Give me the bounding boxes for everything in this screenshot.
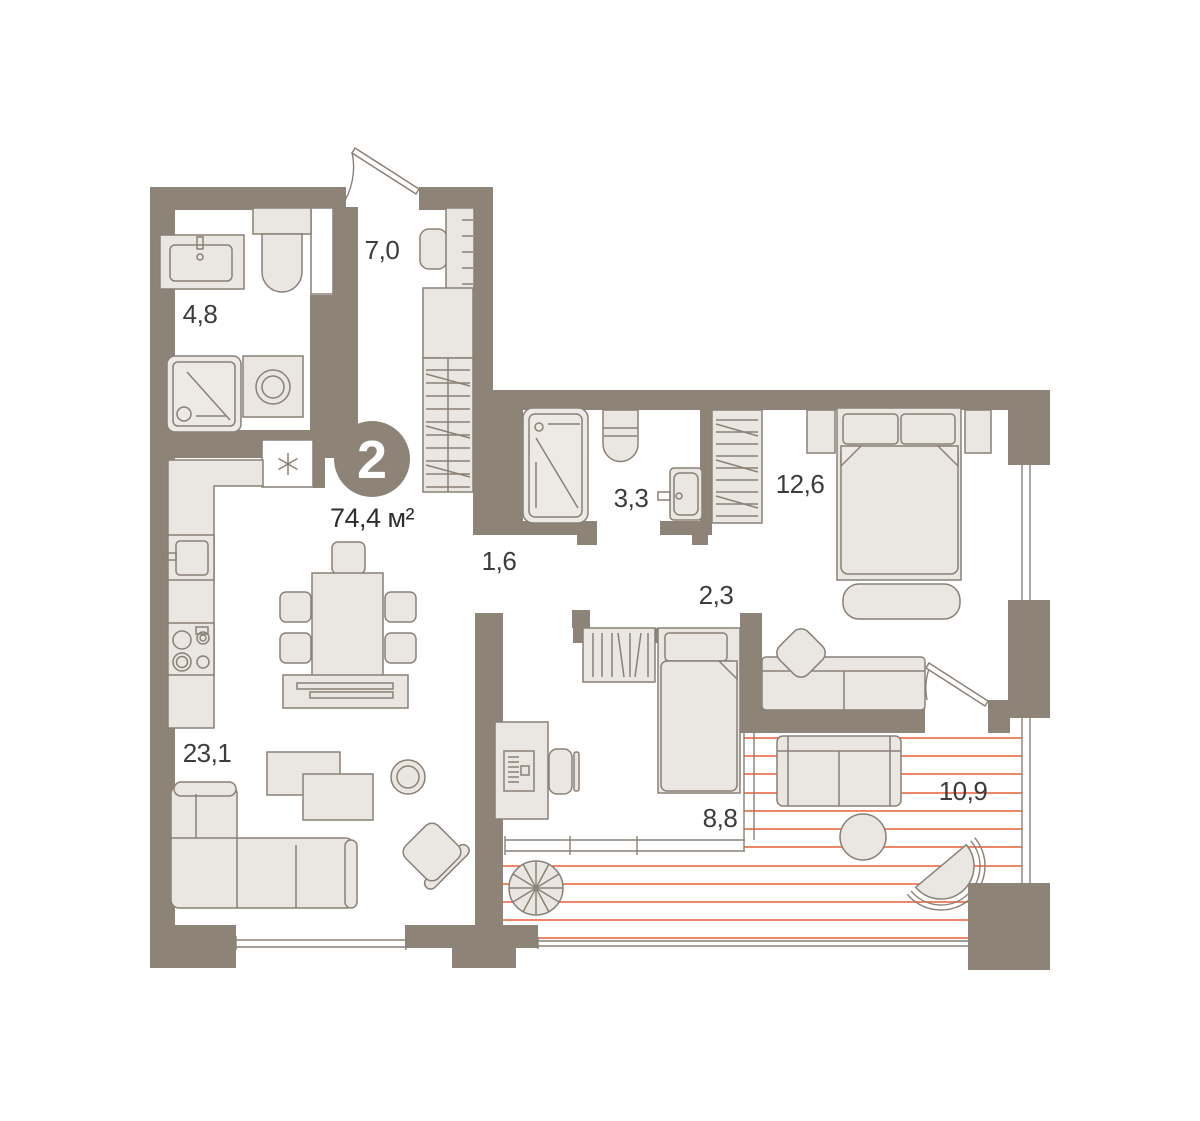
toilet-icon — [253, 208, 311, 292]
shower-tray-icon — [167, 356, 241, 432]
rooms-count-badge: 2 74,4 м² — [330, 421, 415, 533]
wall-segment — [452, 948, 516, 968]
room-area-label-entrance-hall: 7,0 — [365, 235, 400, 265]
cabinet-icon — [423, 288, 473, 358]
wall-segment — [1008, 600, 1050, 718]
wall-segment — [988, 700, 1010, 733]
wardrobe-icon — [423, 358, 473, 492]
kitchen-furniture — [162, 460, 472, 908]
living-room-window — [236, 936, 406, 950]
room-area-label-kitchen-living: 23,1 — [183, 738, 232, 768]
armchair-icon — [395, 815, 471, 891]
room-area-label-corridor: 2,3 — [699, 580, 734, 610]
bedroom-window — [1022, 465, 1030, 600]
fridge-niche — [262, 440, 313, 487]
wall-segment — [419, 187, 493, 210]
room-area-label-bedroom-second: 8,8 — [703, 803, 738, 833]
kitchen-sink-icon — [162, 535, 214, 580]
nightstand-icon — [965, 410, 991, 453]
chair-icon — [332, 542, 365, 574]
bench-icon — [420, 229, 447, 269]
wall-segment — [473, 207, 493, 392]
floor-plan-drawing: 7,0 4,8 3,3 12,6 1,6 2,3 23,1 8,8 10,9 2… — [0, 0, 1200, 1121]
room-area-label-hallway: 1,6 — [482, 546, 517, 576]
bed-bench-icon — [843, 584, 960, 619]
desk-chair-icon — [549, 749, 579, 794]
wall-segment — [313, 430, 325, 488]
terrace-door — [926, 663, 988, 706]
wall-segment — [968, 883, 1050, 970]
washing-machine-icon — [243, 356, 303, 417]
spiral-stair-icon — [509, 861, 563, 915]
bathroom-sliding-door — [311, 208, 333, 294]
wall-segment — [405, 925, 538, 948]
single-bed-icon — [658, 628, 740, 793]
stove-icon — [168, 623, 214, 675]
toilet-icon — [603, 410, 638, 462]
kitchen-counter — [168, 460, 263, 728]
console-icon — [283, 675, 408, 708]
wardrobe-icon — [712, 410, 762, 523]
wall-segment — [150, 187, 346, 210]
chair-icon — [280, 633, 311, 663]
coffee-table-icon — [303, 774, 373, 820]
shoe-rack-icon — [446, 208, 474, 290]
room-area-label-shower-room: 3,3 — [614, 483, 649, 513]
ottoman-icon — [391, 760, 425, 794]
room-area-label-bathroom: 4,8 — [183, 299, 218, 329]
bedroom2-furniture — [495, 628, 740, 819]
desk-icon — [495, 722, 548, 819]
bedroom-sofa-icon — [762, 625, 925, 710]
wall-segment — [150, 925, 236, 968]
room-area-label-bedroom-master: 12,6 — [776, 469, 825, 499]
entrance-door — [341, 148, 419, 207]
sink-icon — [658, 468, 702, 520]
wall-segment — [473, 390, 1050, 410]
double-bed-icon — [837, 408, 961, 580]
wall-segment — [692, 535, 708, 545]
shower-room-fixtures — [523, 408, 702, 523]
wall-segment — [572, 610, 590, 628]
sink-icon — [160, 235, 244, 289]
wall-segment — [333, 207, 358, 295]
hall-furniture — [420, 208, 474, 492]
badge-rooms-count: 2 — [357, 430, 387, 490]
wall-segment — [1008, 390, 1050, 465]
nightstand-icon — [807, 410, 835, 453]
chair-icon — [385, 592, 416, 622]
floor-plan: 7,0 4,8 3,3 12,6 1,6 2,3 23,1 8,8 10,9 2… — [0, 0, 1200, 1121]
wall-segment — [577, 535, 597, 545]
dining-table-icon — [312, 573, 383, 677]
dining-set — [280, 542, 416, 708]
wall-segment — [660, 521, 712, 535]
round-table-icon — [840, 814, 886, 860]
wall-segment — [473, 410, 523, 535]
total-area-label: 74,4 м² — [330, 503, 415, 533]
shower-cabin-icon — [523, 408, 588, 523]
bookshelf-icon — [583, 628, 655, 682]
room-area-label-terrace: 10,9 — [939, 776, 988, 806]
terrace-sofa-icon — [777, 736, 901, 806]
chair-icon — [280, 592, 311, 622]
terrace-glazing-right — [1022, 718, 1030, 883]
terrace-furniture — [509, 736, 1003, 928]
chair-icon — [385, 633, 416, 663]
